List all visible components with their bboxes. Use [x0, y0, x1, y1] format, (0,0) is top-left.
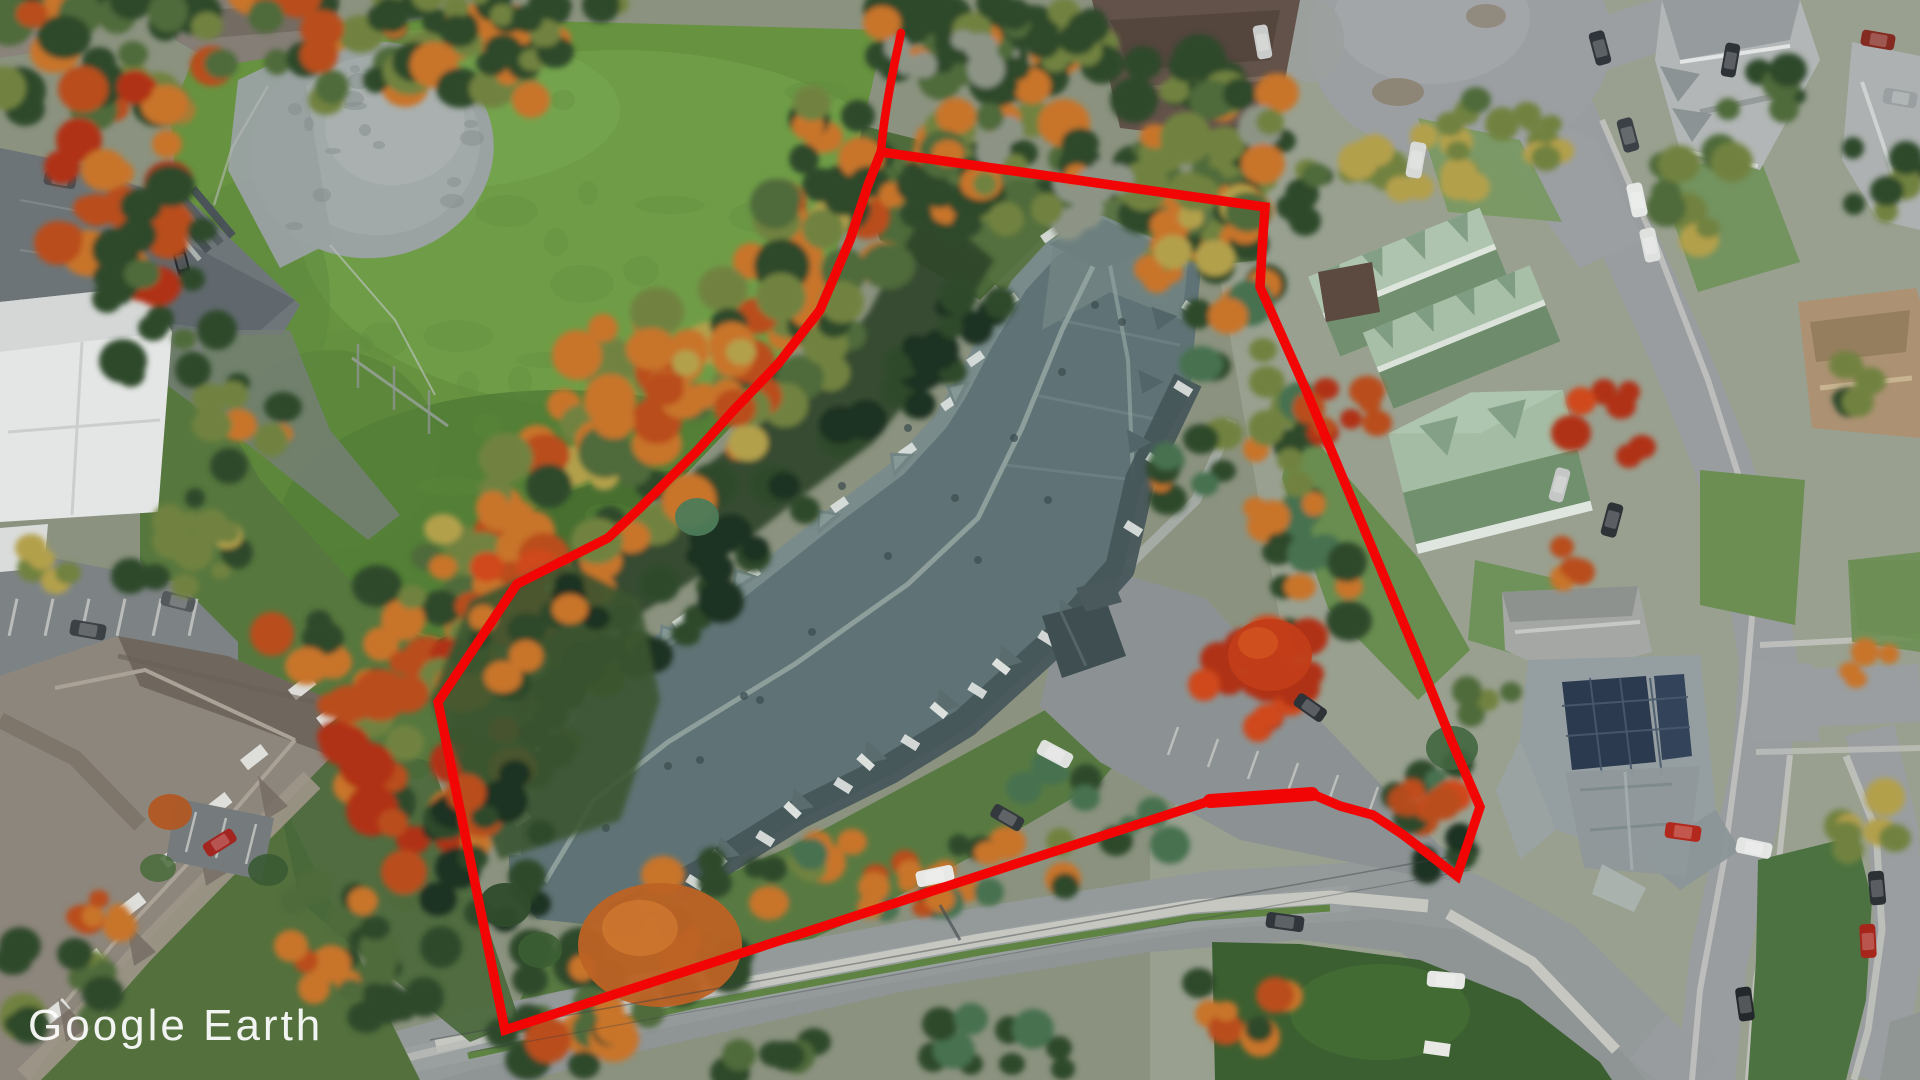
svg-text:Google Earth: Google Earth: [28, 1001, 323, 1050]
